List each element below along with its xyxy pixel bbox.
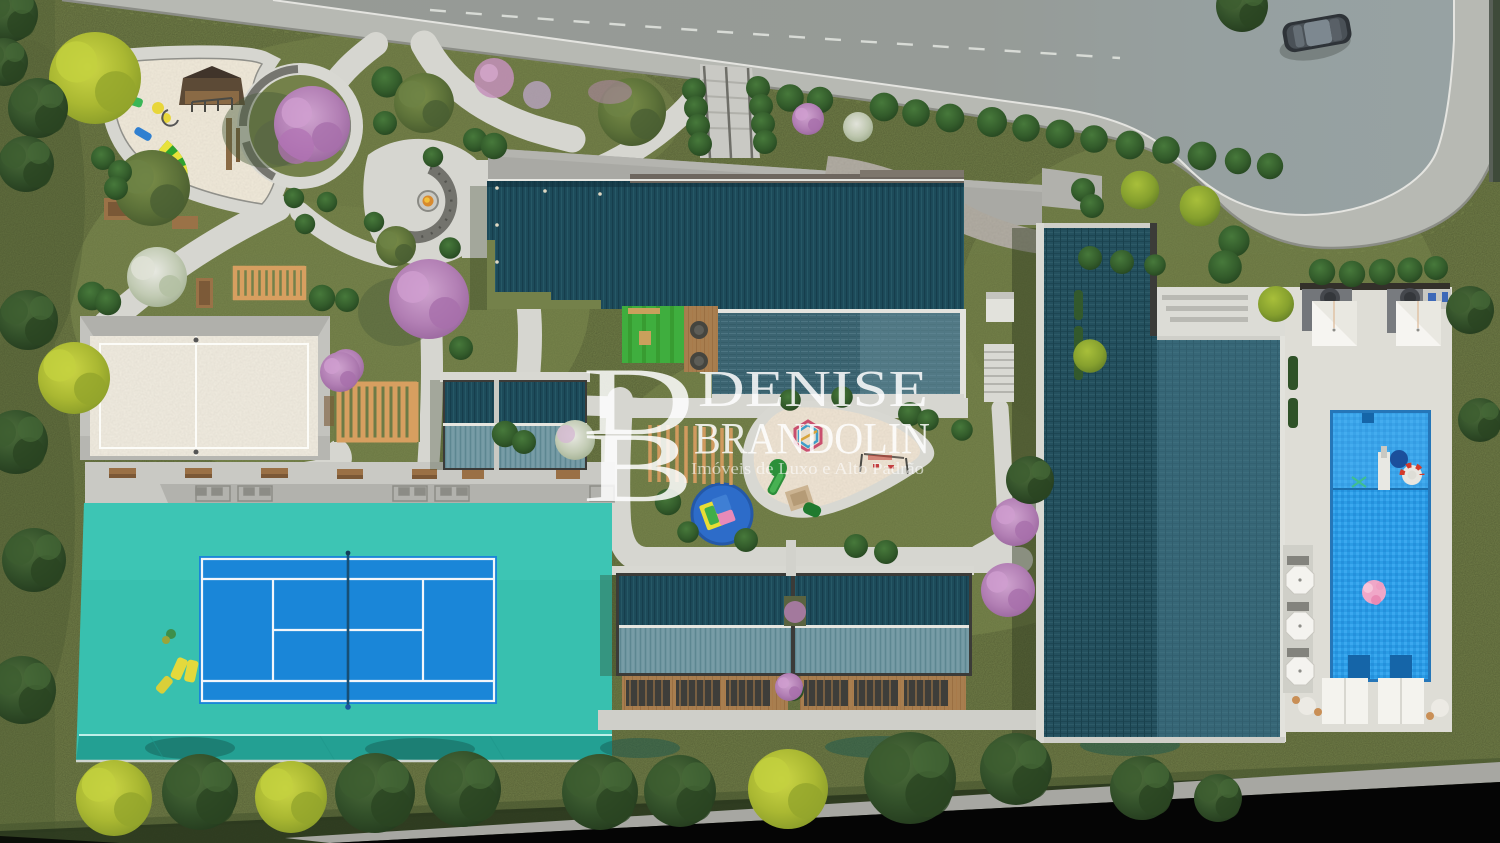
svg-text:BRANDOLIN: BRANDOLIN [694,414,930,463]
svg-text:DENISE: DENISE [698,361,928,418]
svg-text:Imóveis de Luxo e Alto Padrão: Imóveis de Luxo e Alto Padrão [691,459,924,478]
svg-text:B: B [582,412,695,523]
